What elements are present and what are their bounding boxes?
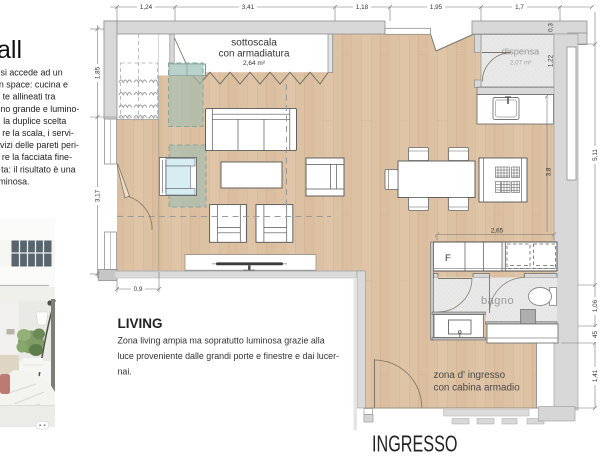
svg-text:LIVING: LIVING bbox=[118, 316, 163, 331]
svg-text:1,06: 1,06 bbox=[592, 299, 599, 312]
svg-text:45: 45 bbox=[592, 331, 599, 339]
svg-text:0,3: 0,3 bbox=[548, 23, 555, 32]
svg-text:con cabina armadio: con cabina armadio bbox=[434, 383, 521, 394]
svg-text:1,22: 1,22 bbox=[548, 54, 555, 67]
svg-text:F: F bbox=[445, 253, 451, 264]
svg-text:n space: cucina e: n space: cucina e bbox=[0, 80, 68, 90]
svg-text:si accede ad un: si accede ad un bbox=[1, 68, 63, 78]
svg-text:3,41: 3,41 bbox=[242, 4, 255, 11]
svg-text:5,11: 5,11 bbox=[592, 149, 599, 161]
svg-text:2,64 m²: 2,64 m² bbox=[243, 60, 266, 67]
svg-text:zona d' ingresso: zona d' ingresso bbox=[434, 370, 506, 381]
svg-text:nai.: nai. bbox=[118, 367, 132, 377]
svg-text:1,18: 1,18 bbox=[356, 4, 369, 11]
svg-text:re la scala, i servi-: re la scala, i servi- bbox=[2, 128, 74, 138]
svg-text:dispensa: dispensa bbox=[502, 46, 540, 57]
svg-text:ta: il risultato è una: ta: il risultato è una bbox=[1, 164, 76, 174]
svg-text:bagno: bagno bbox=[481, 295, 514, 307]
svg-text:rvizi delle pareti peri-: rvizi delle pareti peri- bbox=[0, 140, 79, 150]
svg-text:con armadiatura: con armadiatura bbox=[219, 49, 290, 60]
svg-text:no grande e lumino-: no grande e lumino- bbox=[0, 104, 79, 114]
svg-text:2,07 m²: 2,07 m² bbox=[510, 60, 531, 67]
svg-text:re la facciata fine-: re la facciata fine- bbox=[2, 152, 72, 162]
svg-text:minosa.: minosa. bbox=[0, 176, 29, 186]
svg-text:te allineati tra: te allineati tra bbox=[3, 92, 56, 102]
svg-text:1,24: 1,24 bbox=[140, 4, 153, 11]
svg-text:sottoscala: sottoscala bbox=[231, 38, 277, 49]
svg-text:0,9: 0,9 bbox=[134, 286, 143, 293]
svg-text:la duplice scelta: la duplice scelta bbox=[3, 116, 66, 126]
svg-text:luce proveniente dalle grandi: luce proveniente dalle grandi porte e fi… bbox=[118, 351, 340, 361]
svg-text:3,8: 3,8 bbox=[546, 167, 553, 176]
svg-text:3,17: 3,17 bbox=[95, 189, 102, 202]
svg-text:INGRESSO: INGRESSO bbox=[372, 431, 458, 457]
svg-text:Zona living ampia ma sopratutt: Zona living ampia ma sopratutto luminosa… bbox=[118, 336, 325, 346]
svg-text:1,95: 1,95 bbox=[430, 4, 443, 11]
svg-text:1,85: 1,85 bbox=[95, 66, 102, 79]
svg-text:1,41: 1,41 bbox=[592, 369, 599, 382]
svg-text:1,7: 1,7 bbox=[515, 4, 524, 11]
svg-text:all: all bbox=[0, 36, 22, 64]
svg-text:2,65: 2,65 bbox=[491, 228, 504, 235]
